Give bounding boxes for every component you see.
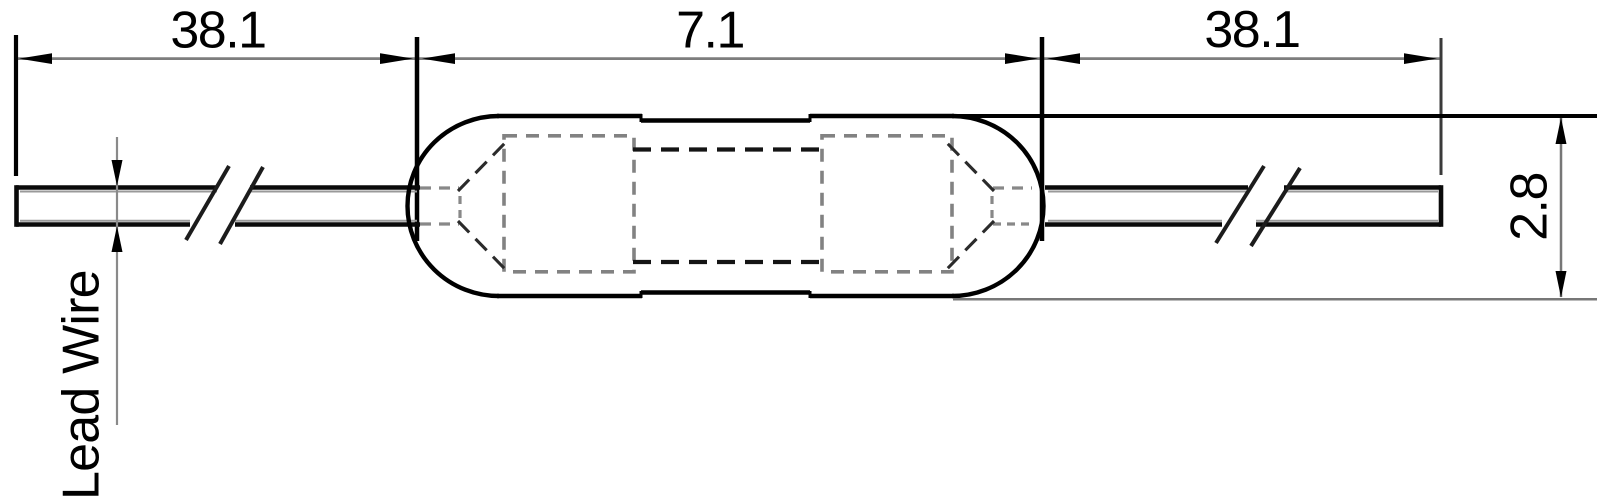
svg-text:7.1: 7.1 (676, 2, 744, 60)
svg-text:Lead Wire: Lead Wire (53, 270, 111, 500)
svg-text:38.1: 38.1 (170, 2, 265, 60)
svg-text:38.1: 38.1 (1204, 1, 1299, 59)
svg-text:2.8: 2.8 (1501, 173, 1559, 241)
